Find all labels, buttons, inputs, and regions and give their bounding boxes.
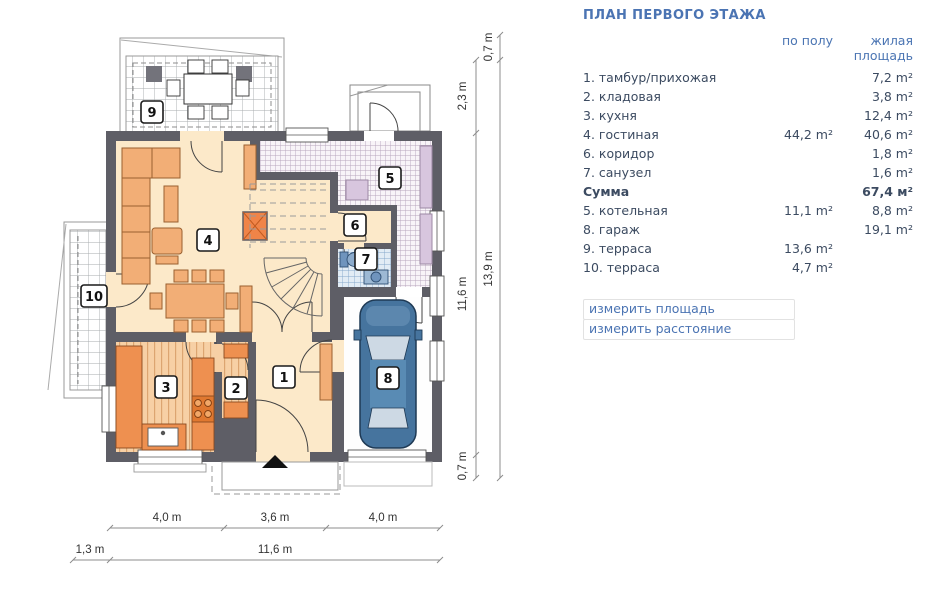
window <box>430 276 444 316</box>
terrace-post <box>146 66 162 82</box>
table-row: 10. терраса 4,7 m² <box>583 258 913 277</box>
svg-text:1,3 m: 1,3 m <box>76 544 105 556</box>
table-row: 4. гостиная 44,2 m² 40,6 m² <box>583 125 913 144</box>
wardrobe-icon <box>320 344 332 400</box>
room-label-10: 10 <box>81 285 107 307</box>
svg-text:4,0 m: 4,0 m <box>153 512 182 524</box>
room-label-2: 2 <box>225 377 247 399</box>
sink-icon <box>371 272 381 282</box>
svg-text:2,3 m: 2,3 m <box>457 82 469 111</box>
garage-apron <box>344 462 432 486</box>
table-row-sum: Сумма 67,4 м² <box>583 182 913 201</box>
svg-text:4: 4 <box>203 234 212 249</box>
room-label-8: 8 <box>377 367 399 389</box>
area-table-panel: ПЛАН ПЕРВОГО ЭТАЖА по полу жилая площадь… <box>583 8 913 340</box>
svg-text:1: 1 <box>279 371 288 386</box>
svg-text:3,6 m: 3,6 m <box>261 512 290 524</box>
table-row: 7. санузел 1,6 m² <box>583 163 913 182</box>
column-header-floor: по полу <box>737 33 833 63</box>
svg-text:10: 10 <box>85 290 103 305</box>
svg-text:0,7 m: 0,7 m <box>483 33 495 62</box>
armchair-icon <box>152 228 182 254</box>
table-row: 5. котельная 11,1 m² 8,8 m² <box>583 201 913 220</box>
measure-tools: измерить площадь измерить расстояние <box>583 299 795 340</box>
dimensions-bottom: 4,0 m 3,6 m 4,0 m 1,3 m 11,6 m <box>70 512 443 563</box>
svg-text:13,9 m: 13,9 m <box>483 251 495 286</box>
table-row: 2. кладовая 3,8 m² <box>583 87 913 106</box>
window <box>430 341 444 381</box>
room-label-3: 3 <box>155 376 177 398</box>
svg-text:3: 3 <box>161 381 170 396</box>
svg-text:11,6 m: 11,6 m <box>457 277 469 311</box>
table-header: по полу жилая площадь <box>583 33 913 63</box>
floor-plan-svg: 1 2 3 4 5 6 7 8 <box>0 0 560 607</box>
room-label-6: 6 <box>344 214 366 236</box>
table-row: 6. коридор 1,8 m² <box>583 144 913 163</box>
svg-text:7: 7 <box>361 253 370 268</box>
room-label-4: 4 <box>197 229 219 251</box>
cabinet-icon <box>244 145 256 189</box>
cabinet-icon <box>240 286 252 332</box>
dimensions-right: 2,3 m 11,6 m 0,7 m 0,7 m 13,9 m <box>457 32 503 481</box>
svg-text:6: 6 <box>350 219 359 234</box>
stove-icon <box>192 396 214 422</box>
window <box>134 450 206 472</box>
window <box>286 128 328 142</box>
svg-text:8: 8 <box>383 372 392 387</box>
svg-text:0,7 m: 0,7 m <box>457 452 469 481</box>
counter <box>116 346 142 448</box>
cabinet-icon <box>224 344 248 358</box>
coffee-table-icon <box>164 186 178 222</box>
room-label-1: 1 <box>273 366 295 388</box>
sink-icon <box>148 428 178 446</box>
cabinet-icon <box>224 402 248 418</box>
rear-porch <box>350 85 430 131</box>
svg-text:9: 9 <box>147 106 156 121</box>
room-label-7: 7 <box>355 248 377 270</box>
appliance-icon <box>346 180 368 200</box>
svg-text:2: 2 <box>231 382 240 397</box>
table-row: 9. терраса 13,6 m² <box>583 239 913 258</box>
window <box>102 386 116 432</box>
svg-text:11,6 m: 11,6 m <box>258 544 292 556</box>
column-header-living: жилая площадь <box>833 33 913 63</box>
terrace-10 <box>48 222 108 398</box>
table-row: 1. тамбур/прихожая 7,2 m² <box>583 68 913 87</box>
svg-text:4,0 m: 4,0 m <box>369 512 398 524</box>
room-label-5: 5 <box>379 167 401 189</box>
measure-area-link[interactable]: измерить площадь <box>583 299 795 320</box>
room-label-9: 9 <box>141 101 163 123</box>
svg-text:5: 5 <box>385 172 394 187</box>
page-title: ПЛАН ПЕРВОГО ЭТАЖА <box>583 8 913 23</box>
measure-distance-link[interactable]: измерить расстояние <box>583 319 795 340</box>
table-row: 3. кухня 12,4 m² <box>583 106 913 125</box>
table-row: 8. гараж 19,1 m² <box>583 220 913 239</box>
